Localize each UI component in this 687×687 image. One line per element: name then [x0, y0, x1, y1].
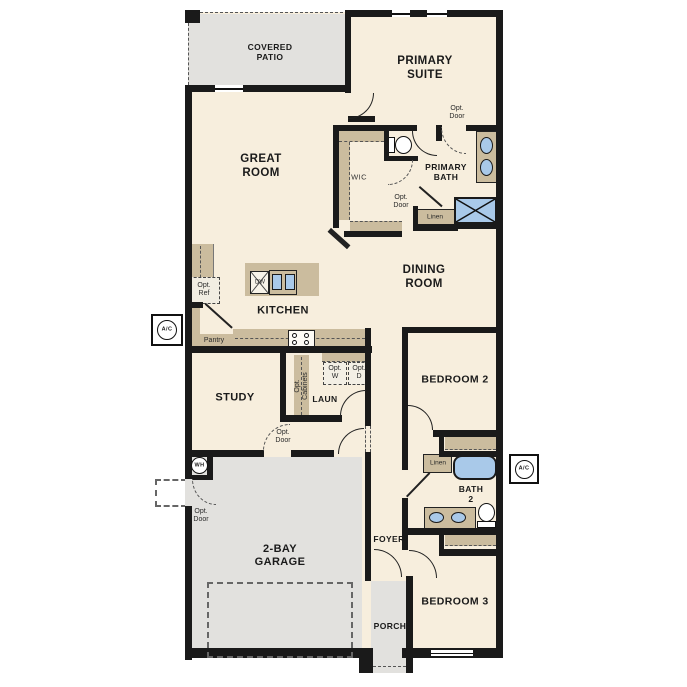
wall-segment — [402, 528, 503, 535]
wall-segment — [345, 10, 503, 17]
wall-segment — [333, 125, 417, 131]
washer-dryer-counter — [322, 353, 370, 362]
label-opt-door: Opt. Door — [193, 508, 208, 524]
wall-segment — [402, 327, 503, 333]
patio-dashed-edge — [188, 23, 189, 85]
wall-segment — [345, 10, 351, 93]
wall-segment — [185, 85, 192, 660]
room-label-covered-patio: COVERED PATIO — [248, 42, 293, 62]
bath2-sink-icon — [451, 512, 466, 523]
primary-sink-icon — [480, 159, 493, 176]
kitchen-sink-bowl — [285, 274, 295, 290]
bath2-sink-icon — [429, 512, 444, 523]
wall-segment — [365, 452, 371, 581]
label-opt-door: Opt. Door — [275, 429, 290, 445]
window — [427, 13, 447, 15]
patio-dashed-edge — [200, 12, 348, 13]
primary-toilet-icon — [388, 137, 395, 153]
wall-segment — [439, 451, 503, 457]
label-linen: Linen — [427, 213, 443, 220]
opt-opening-dashed — [365, 426, 371, 452]
room-label-garage: 2-BAY GARAGE — [255, 543, 306, 569]
wall-segment — [496, 10, 503, 658]
room-label-foyer: FOYER — [373, 534, 404, 544]
wall-segment — [359, 648, 373, 673]
primary-sink-icon — [480, 137, 493, 154]
pantry-shelf-left — [192, 307, 200, 337]
room-label-great-room: GREAT ROOM — [240, 153, 281, 181]
room-label-primary-suite: PRIMARY SUITE — [397, 55, 452, 83]
wall-segment — [402, 327, 408, 470]
window — [215, 88, 243, 90]
bedroom3-closet-shelf — [445, 535, 496, 546]
room-label-dining-room: DINING ROOM — [403, 264, 446, 292]
bath2-toilet-icon — [477, 521, 496, 528]
room-label-bedroom3: BEDROOM 3 — [421, 596, 488, 609]
label-opt-dryer: Opt. D — [352, 365, 365, 381]
wall-segment — [333, 125, 339, 228]
label-linen: Linen — [430, 459, 446, 466]
room-label-primary-bath: PRIMARY BATH — [425, 162, 467, 182]
room-label-bedroom2: BEDROOM 2 — [421, 374, 488, 387]
room-label-bath2: BATH 2 — [459, 484, 484, 504]
label-opt-cabinets: Opt. Cabinets — [294, 372, 310, 400]
kitchen-sink-bowl — [272, 274, 282, 290]
wall-segment — [280, 415, 342, 422]
wall-segment — [413, 224, 458, 231]
label-dishwasher: DW — [255, 280, 265, 287]
window — [392, 13, 410, 15]
wall-segment — [344, 231, 402, 237]
label-pantry: Pantry — [204, 337, 224, 345]
label-opt-door: Opt. Door — [449, 105, 464, 121]
room-label-laundry: LAUN — [312, 394, 337, 404]
bath2-toilet-icon — [478, 503, 495, 522]
wall-segment — [185, 302, 203, 308]
opt-side-door-box — [155, 479, 187, 507]
wic-shelf-top — [339, 131, 384, 142]
window — [431, 653, 473, 655]
shower-icon — [454, 197, 497, 224]
ac-unit-label: A/C — [519, 466, 530, 473]
tub-icon — [453, 455, 497, 480]
wall-segment — [185, 85, 350, 92]
room-label-kitchen: KITCHEN — [257, 304, 309, 317]
garage-door-dashed — [207, 582, 353, 658]
room-label-wic: WIC — [351, 173, 367, 182]
wall-segment — [433, 430, 503, 437]
wall-segment — [439, 549, 503, 556]
wall-segment — [185, 346, 372, 353]
label-opt-door: Opt. Door — [393, 194, 408, 210]
label-opt-ref: Opt. Ref — [197, 282, 210, 298]
room-label-study: STUDY — [215, 391, 254, 404]
ac-unit-left: A/C — [151, 314, 183, 346]
wall-segment — [291, 450, 334, 457]
wall-segment — [185, 450, 264, 457]
water-heater-label: WH — [195, 462, 205, 469]
label-opt-washer: Opt. W — [328, 365, 341, 381]
primary-toilet-icon — [395, 136, 412, 154]
porch-dashed-edge — [373, 666, 406, 667]
wic-shelf-left — [339, 142, 350, 220]
wall-segment — [406, 576, 413, 673]
floor-plan: WH A/C A/C COVERED PATIO PRIMARY SUITE G… — [0, 0, 687, 687]
ac-unit-label: A/C — [162, 327, 173, 334]
door-opening — [185, 479, 192, 506]
wall-segment — [280, 353, 286, 418]
wall-segment — [466, 125, 496, 131]
wic-shelf-bottom — [350, 221, 402, 231]
ac-unit-right: A/C — [509, 454, 539, 484]
room-label-porch: PORCH — [374, 621, 407, 631]
wall-segment — [185, 10, 200, 23]
wall-segment — [454, 223, 497, 229]
water-heater-icon: WH — [191, 457, 208, 474]
bedroom2-closet-shelf — [445, 437, 496, 450]
range-icon — [288, 330, 315, 347]
